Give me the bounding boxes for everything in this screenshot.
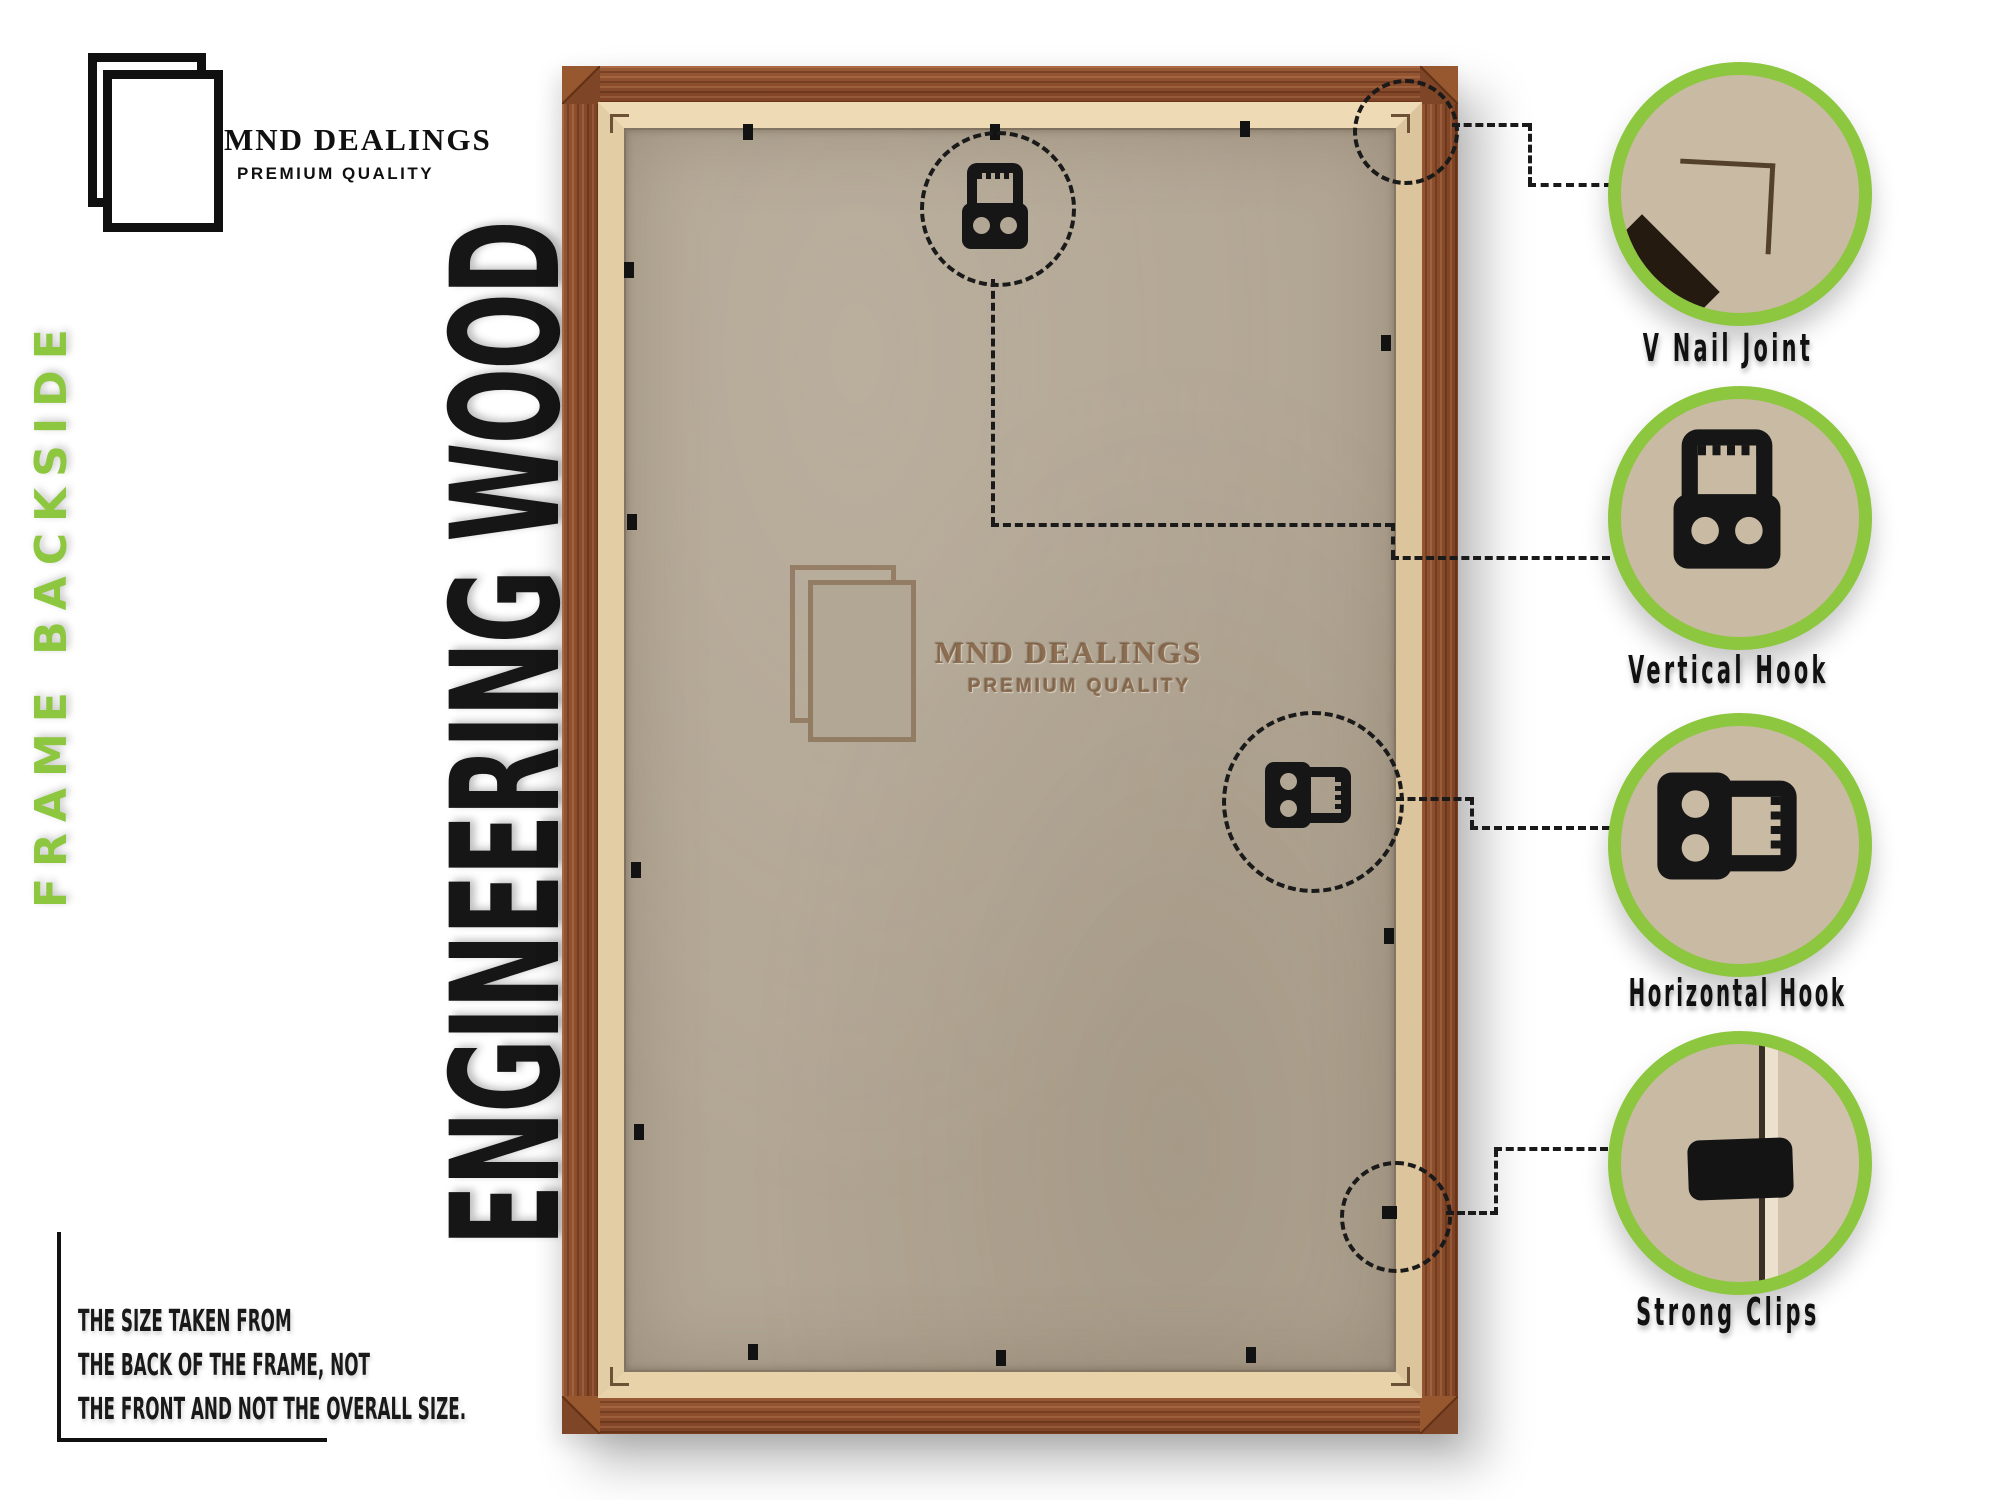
watermark-name: MND DEALINGS	[935, 635, 1203, 671]
wood-frame-top	[600, 66, 1420, 104]
leader-line	[1396, 797, 1473, 801]
page: MND DEALINGS PREMIUM QUALITY FRAME BACKS…	[0, 0, 2000, 1500]
leader-line	[1391, 523, 1395, 558]
staple	[1381, 335, 1391, 351]
staple	[634, 1124, 644, 1140]
strong-clip-icon	[1687, 1137, 1794, 1200]
logo-frame-front-icon	[103, 70, 223, 232]
leader-line	[991, 279, 995, 525]
wood-miter-corner	[562, 66, 600, 104]
wood-miter-corner	[562, 1396, 600, 1434]
leader-line	[1470, 826, 1610, 830]
horizontal-hook-callout-circle	[1608, 713, 1872, 977]
watermark-frame-front-icon	[808, 580, 916, 742]
size-note-line-2: THE BACK OF THE FRAME, NOT	[78, 1348, 599, 1383]
staple	[1240, 121, 1250, 137]
staple	[624, 262, 634, 278]
v-nail-mark	[610, 114, 629, 133]
vertical-hook-icon	[1674, 429, 1781, 568]
staple	[996, 1350, 1006, 1366]
staple	[1246, 1347, 1256, 1363]
corner-highlight-circle	[1353, 79, 1459, 185]
leader-line	[1494, 1147, 1608, 1151]
vertical-hook-callout-circle	[1608, 386, 1872, 650]
brand-name: MND DEALINGS	[224, 122, 492, 158]
leader-line	[1391, 556, 1610, 560]
wood-miter-corner	[1420, 1396, 1458, 1434]
v-nail-mark	[610, 1367, 629, 1386]
leader-line	[1494, 1149, 1498, 1215]
staple	[1384, 928, 1394, 944]
brand-tagline: PREMIUM QUALITY	[237, 164, 434, 184]
v-nail-joint-callout-circle	[1608, 62, 1872, 326]
frame-backside-vertical-label: FRAME BACKSIDE	[26, 320, 76, 908]
staple	[631, 862, 641, 878]
size-note-line-1: THE SIZE TAKEN FROM	[78, 1304, 460, 1339]
leader-line	[1452, 123, 1530, 127]
v-nail-groove-icon	[1676, 158, 1776, 254]
wood-frame-left	[562, 66, 600, 1434]
leader-line	[1528, 183, 1612, 187]
v-nail-mark	[1391, 1367, 1410, 1386]
wood-frame-bottom	[600, 1396, 1420, 1434]
strong-clips-callout-circle	[1608, 1031, 1872, 1295]
leader-line	[991, 523, 1393, 527]
leader-line	[1446, 1211, 1498, 1215]
brand-logo: MND DEALINGS PREMIUM QUALITY	[0, 0, 480, 230]
watermark-tagline: PREMIUM QUALITY	[968, 676, 1191, 698]
horizontal-hook-icon	[1657, 773, 1796, 880]
staple	[743, 124, 753, 140]
horizontal-hook-highlight-circle	[1222, 711, 1404, 893]
leader-line	[1470, 797, 1474, 828]
vertical-hook-highlight-circle	[920, 131, 1076, 287]
clip-highlight-circle	[1340, 1161, 1452, 1273]
v-nail-joint-label: V Nail Joint	[1528, 326, 1928, 370]
staple	[748, 1344, 758, 1360]
strong-clips-label: Strong Clips	[1528, 1290, 1928, 1334]
engineering-wood-vertical-label: ENGINEERING WOOD	[437, 261, 577, 1246]
horizontal-hook-label: Horizontal Hook	[1528, 971, 1928, 1015]
leader-line	[1528, 123, 1532, 185]
staple	[627, 514, 637, 530]
vertical-hook-label: Vertical Hook	[1528, 648, 1928, 692]
